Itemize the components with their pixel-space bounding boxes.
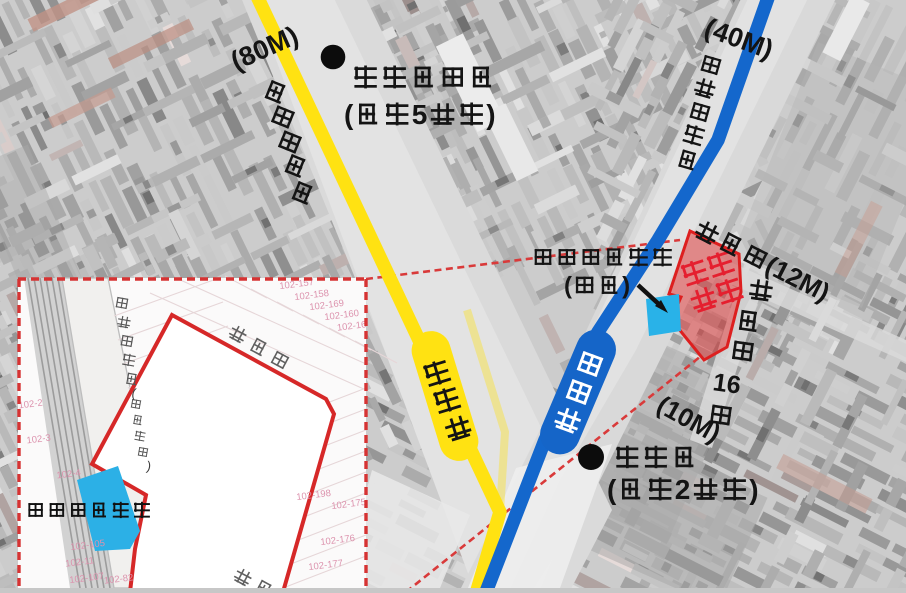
svg-text:5: 5 [412, 99, 428, 130]
svg-text:): ) [749, 474, 758, 505]
svg-text:2: 2 [675, 474, 691, 505]
svg-text:(: ( [344, 99, 354, 130]
svg-text:): ) [622, 273, 630, 300]
svg-text:16: 16 [711, 368, 742, 400]
svg-text:(: ( [607, 474, 617, 505]
svg-text:(: ( [564, 273, 572, 300]
svg-text:): ) [486, 99, 495, 130]
